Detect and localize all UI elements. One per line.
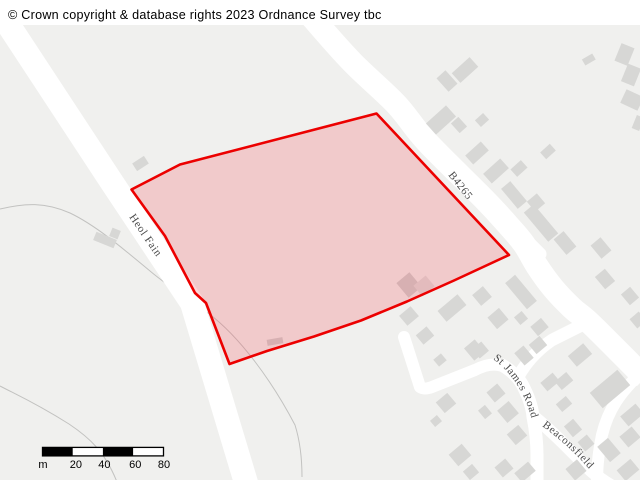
svg-text:m: m: [38, 459, 47, 471]
svg-text:20: 20: [70, 459, 82, 471]
svg-text:60: 60: [129, 459, 141, 471]
svg-text:80: 80: [158, 459, 170, 471]
svg-text:40: 40: [98, 459, 110, 471]
svg-text:© Crown copyright & database r: © Crown copyright & database rights 2023…: [8, 8, 382, 22]
